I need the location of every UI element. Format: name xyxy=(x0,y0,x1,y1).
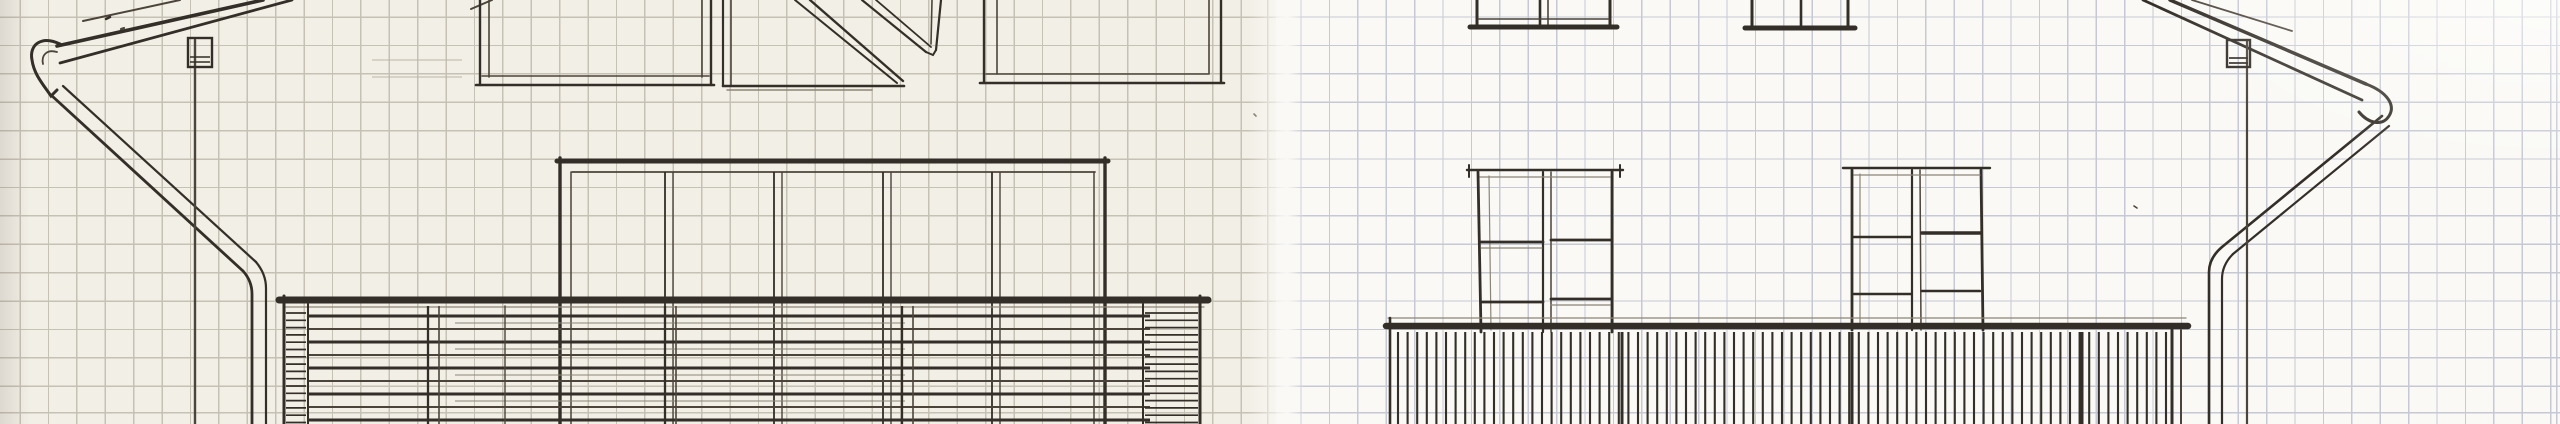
right-gutter-hook xyxy=(2359,84,2391,123)
left-gutter-hook xyxy=(32,41,60,96)
gable-triangle-hypotenuse-inner xyxy=(795,0,897,83)
roof-ink-mark-2 xyxy=(121,28,124,29)
left-roof-fascia-top xyxy=(57,0,263,46)
gable-wedge-diag-inner xyxy=(876,0,931,47)
roof-ink-mark-1 xyxy=(106,17,110,19)
left-roof-surface-line xyxy=(83,0,180,21)
right-roof-fascia-top xyxy=(2170,0,2366,84)
right-downspout-bend-outer xyxy=(2209,247,2222,424)
tall-window-2-right xyxy=(1981,170,1983,330)
right-downspout-inner xyxy=(2233,126,2389,254)
stray-pencil-mark-1 xyxy=(2134,206,2137,208)
tall-window-2-center-b xyxy=(1920,170,1921,330)
tall-window-1-left-inner xyxy=(1489,176,1491,330)
left-downspout-outer xyxy=(51,95,243,271)
stray-pencil-mark-2 xyxy=(1254,114,1256,116)
left-roof-fascia-bottom xyxy=(60,0,292,63)
right-downspout-bend-inner xyxy=(2222,254,2233,424)
tall-window-1-left xyxy=(1478,172,1481,332)
gable-wedge-diag-outer xyxy=(862,0,926,52)
right-roof-fascia-bottom xyxy=(2143,0,2362,100)
sketch-page xyxy=(0,0,2560,424)
left-downspout-inner xyxy=(63,86,256,262)
gable-wedge-tip xyxy=(926,50,936,55)
left-downspout-bend-outer xyxy=(243,271,252,424)
gable-wedge-right-inner xyxy=(931,0,932,44)
gable-wedge-right-outer xyxy=(936,0,941,50)
sketch-svg xyxy=(0,0,2560,424)
left-downspout-bend-inner xyxy=(256,262,266,424)
left-gutter-hook-inner xyxy=(43,51,57,64)
